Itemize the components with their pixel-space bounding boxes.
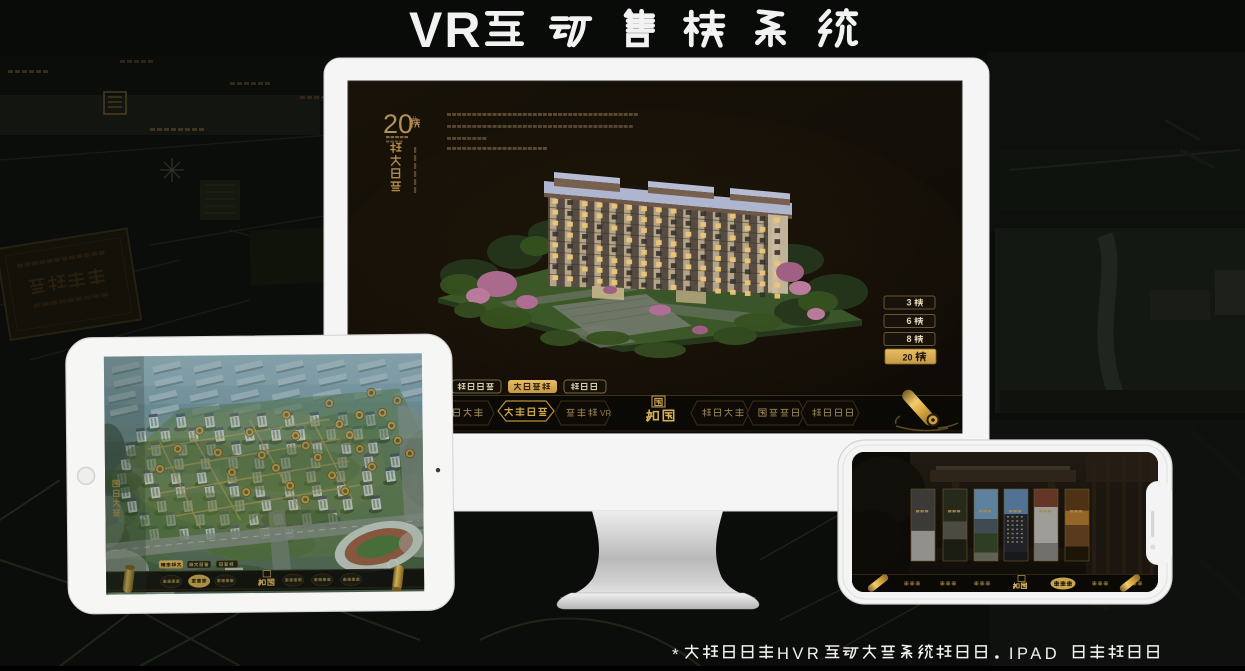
svg-text:6: 6: [906, 316, 911, 326]
svg-text:3: 3: [906, 298, 911, 308]
svg-text:IPAD: IPAD: [1009, 645, 1060, 663]
svg-text:*: *: [672, 645, 679, 664]
svg-text:HVR: HVR: [777, 645, 822, 663]
svg-text:20: 20: [383, 109, 413, 139]
svg-text:VR: VR: [409, 2, 482, 58]
svg-text:VR: VR: [600, 409, 611, 418]
svg-text:8: 8: [906, 334, 911, 344]
svg-text:20: 20: [902, 353, 912, 363]
